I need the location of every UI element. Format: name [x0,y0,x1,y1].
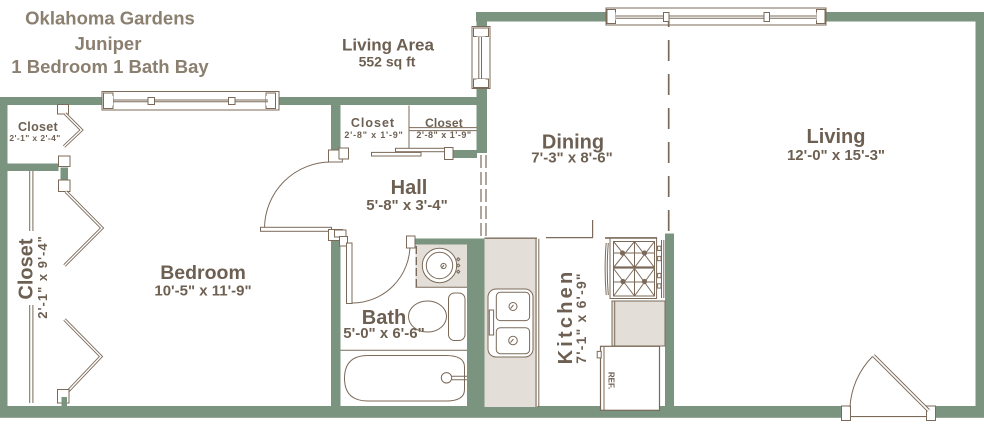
svg-text:12'-0" x 15'-3": 12'-0" x 15'-3" [787,147,885,164]
svg-text:10'-5" x 11'-9": 10'-5" x 11'-9" [154,283,251,300]
svg-text:Closet: Closet [425,116,463,130]
svg-text:552 sq ft: 552 sq ft [359,54,416,70]
svg-text:Closet: Closet [18,120,59,134]
svg-text:2'-1" x 9'-4": 2'-1" x 9'-4" [35,235,50,319]
svg-text:5'-0" x 6'-6": 5'-0" x 6'-6" [343,325,424,342]
svg-text:1 Bedroom 1 Bath Bay: 1 Bedroom 1 Bath Bay [11,56,209,77]
svg-text:7'-1" x 6'-9": 7'-1" x 6'-9" [573,272,589,364]
svg-text:2'-8" x 1'-9": 2'-8" x 1'-9" [344,130,403,140]
svg-text:Bedroom: Bedroom [160,262,246,284]
svg-text:2'-8" x 1'-9": 2'-8" x 1'-9" [416,130,471,140]
svg-text:Living Area: Living Area [342,35,434,54]
svg-text:Hall: Hall [391,177,428,199]
svg-text:REF.: REF. [607,372,616,389]
svg-text:Oklahoma Gardens: Oklahoma Gardens [25,8,195,29]
svg-text:Living: Living [807,126,866,148]
svg-text:7'-3" x 8'-6": 7'-3" x 8'-6" [531,150,612,167]
svg-text:Closet: Closet [351,116,395,130]
svg-text:5'-8" x 3'-4": 5'-8" x 3'-4" [366,197,447,214]
svg-text:Juniper: Juniper [75,33,142,54]
svg-text:2'-1" x 2'-4": 2'-1" x 2'-4" [9,133,60,143]
